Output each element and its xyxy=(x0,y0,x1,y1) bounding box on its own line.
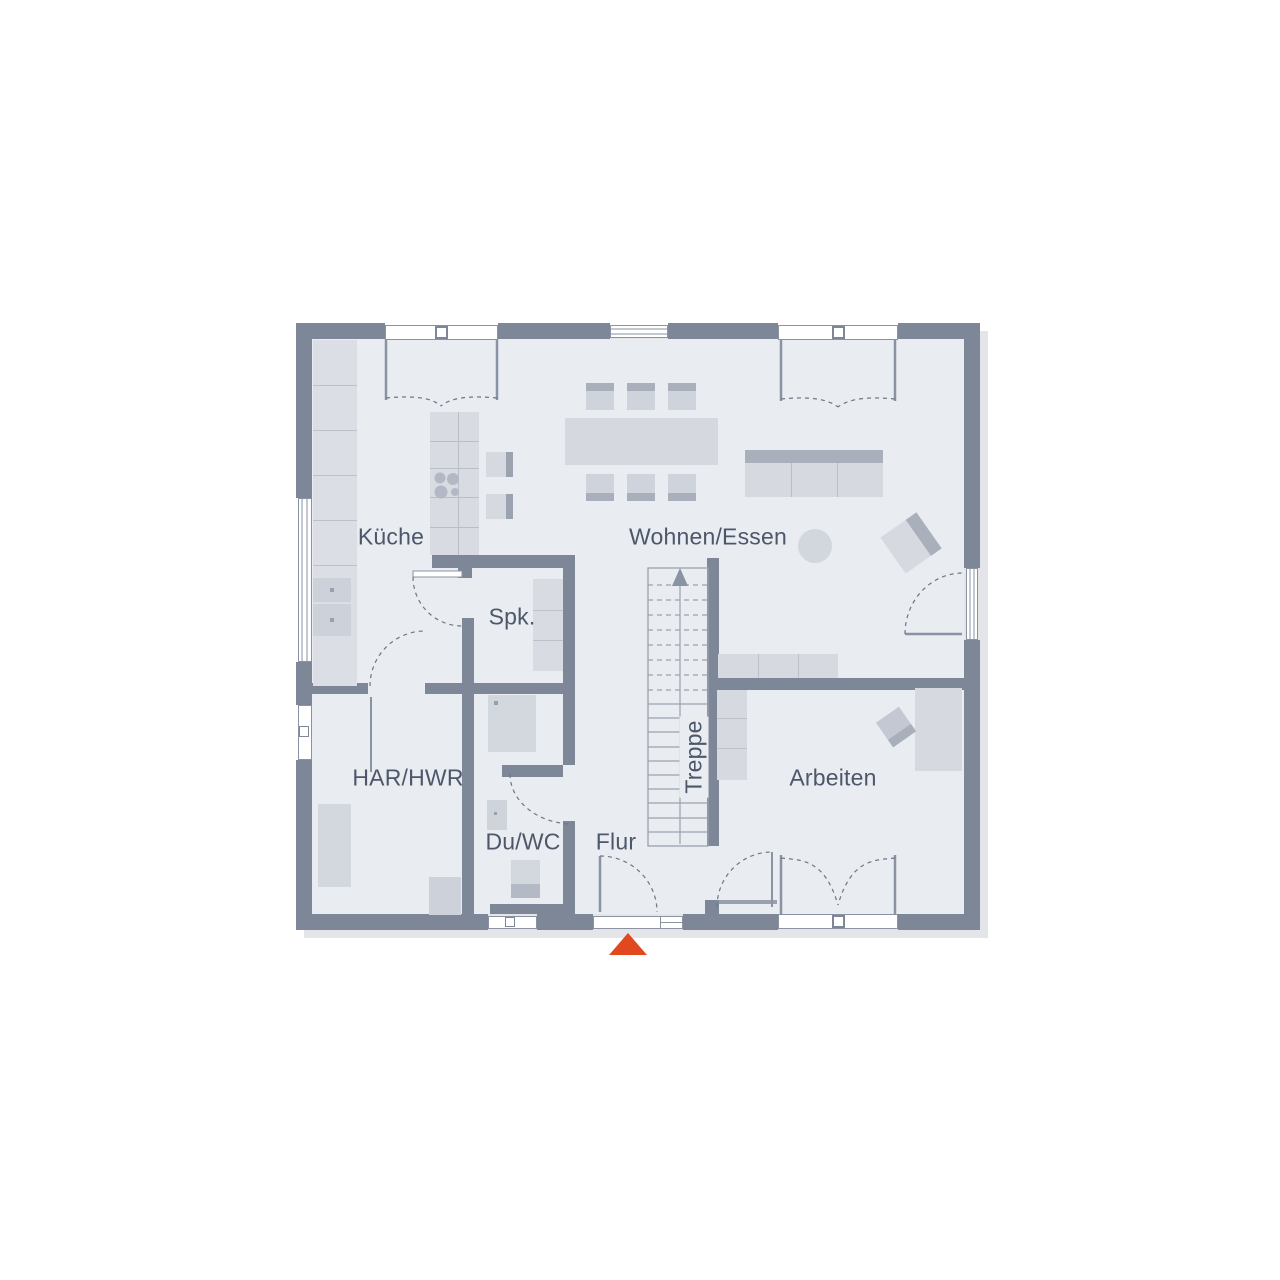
entrance-sidelight-line xyxy=(661,922,683,923)
wall-kitchen-spk-top xyxy=(432,555,575,568)
room-label-flur: Flur xyxy=(596,829,636,856)
wall-harhwr-top-right xyxy=(425,683,575,694)
washbasin xyxy=(487,800,507,830)
room-label-wohnen-essen: Wohnen/Essen xyxy=(629,524,787,551)
wall-bottom-2 xyxy=(537,914,593,930)
french-door-top-right-frame xyxy=(832,326,845,339)
dining-chair-bottom-3 xyxy=(668,474,696,501)
toilet-tank xyxy=(511,884,540,898)
french-door-bottom-frame xyxy=(832,915,845,928)
kitchen-appliance-2 xyxy=(313,604,351,636)
harhwr-shelf xyxy=(318,804,351,887)
dining-chair-top-3 xyxy=(668,383,696,410)
room-label-spk: Spk. xyxy=(489,604,536,631)
dining-chair-bottom-1 xyxy=(586,474,614,501)
sideboard xyxy=(718,654,838,678)
wall-duwc-door-stub xyxy=(502,765,563,777)
bar-stool-2-back xyxy=(506,494,513,519)
wall-top-3 xyxy=(668,323,778,339)
harhwr-box xyxy=(429,877,461,915)
dining-table xyxy=(565,418,718,465)
room-label-treppe: Treppe xyxy=(680,716,709,797)
dining-chair-top-2 xyxy=(627,383,655,410)
door-right-terrace xyxy=(966,568,978,640)
room-label-du-wc: Du/WC xyxy=(485,829,560,856)
wall-right-2 xyxy=(964,640,980,930)
window-top-fixed xyxy=(610,325,668,338)
wall-bottom-3 xyxy=(683,914,778,930)
wall-right-1 xyxy=(964,323,980,568)
dining-chair-bottom-2 xyxy=(627,474,655,501)
toilet xyxy=(511,860,540,884)
shower xyxy=(488,695,536,752)
wall-kitchen-stub xyxy=(458,568,472,578)
sofa xyxy=(745,450,883,497)
wall-left-1 xyxy=(296,323,312,498)
office-desk xyxy=(915,688,962,771)
room-label-har-hwr: HAR/HWR xyxy=(352,765,463,792)
bar-stool-1 xyxy=(486,452,506,477)
pantry-shelf xyxy=(533,579,563,671)
bar-stool-1-back xyxy=(506,452,513,477)
kitchen-appliance-1 xyxy=(313,578,351,602)
room-label-kueche: Küche xyxy=(358,524,424,551)
room-label-arbeiten: Arbeiten xyxy=(789,765,876,792)
wall-top-2 xyxy=(498,323,610,339)
wall-left-2 xyxy=(296,662,312,705)
wall-harhwr-right xyxy=(462,618,474,914)
floorplan-canvas: Küche Wohnen/Essen Spk. HAR/HWR Du/WC Fl… xyxy=(0,0,1280,1280)
bar-stool-2 xyxy=(486,494,506,519)
dining-chair-top-1 xyxy=(586,383,614,410)
wall-duwc-bottom xyxy=(490,904,575,914)
window-left-small-handle xyxy=(299,726,309,737)
window-duwc-handle xyxy=(505,917,515,927)
window-left-tall xyxy=(298,498,312,662)
wall-flur-block xyxy=(705,900,719,917)
wall-duwc-right-lower xyxy=(563,821,575,914)
wall-bottom-1 xyxy=(296,914,488,930)
coffee-table xyxy=(798,529,832,563)
wall-flur-thin xyxy=(719,900,777,904)
wall-left-3 xyxy=(296,760,312,930)
office-shelf xyxy=(717,690,747,780)
french-door-top-left-frame xyxy=(435,326,448,339)
wall-spk-duwc-right-upper xyxy=(563,555,575,765)
kitchen-island xyxy=(430,412,479,555)
